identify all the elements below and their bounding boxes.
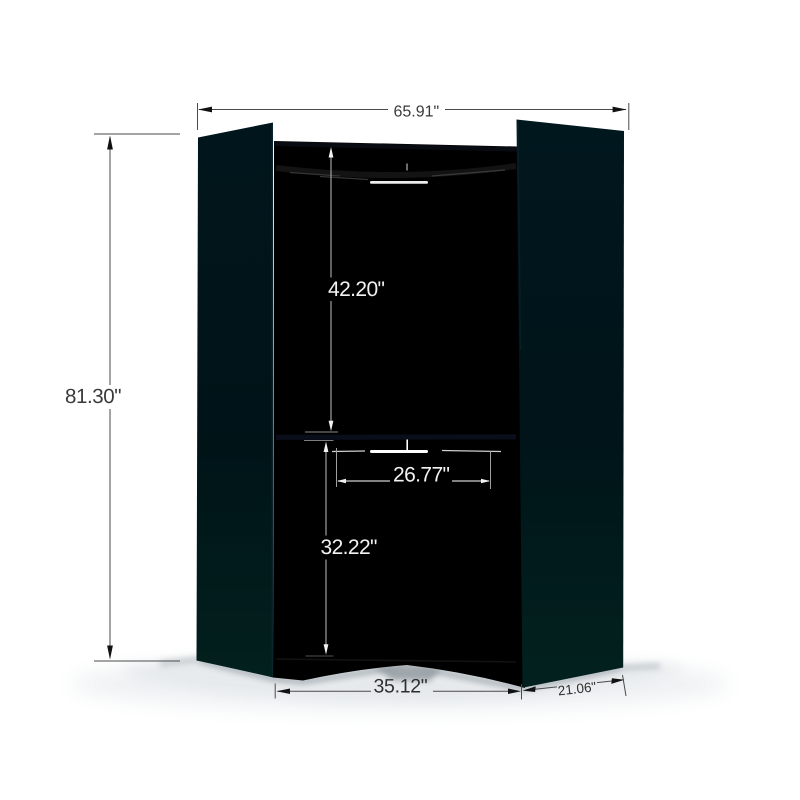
svg-text:42.20": 42.20" <box>328 278 385 301</box>
svg-text:65.91": 65.91" <box>394 104 440 121</box>
svg-text:26.77": 26.77" <box>393 464 450 487</box>
svg-text:32.22": 32.22" <box>321 536 378 559</box>
svg-text:35.12": 35.12" <box>374 676 428 698</box>
svg-text:81.30": 81.30" <box>65 385 121 408</box>
